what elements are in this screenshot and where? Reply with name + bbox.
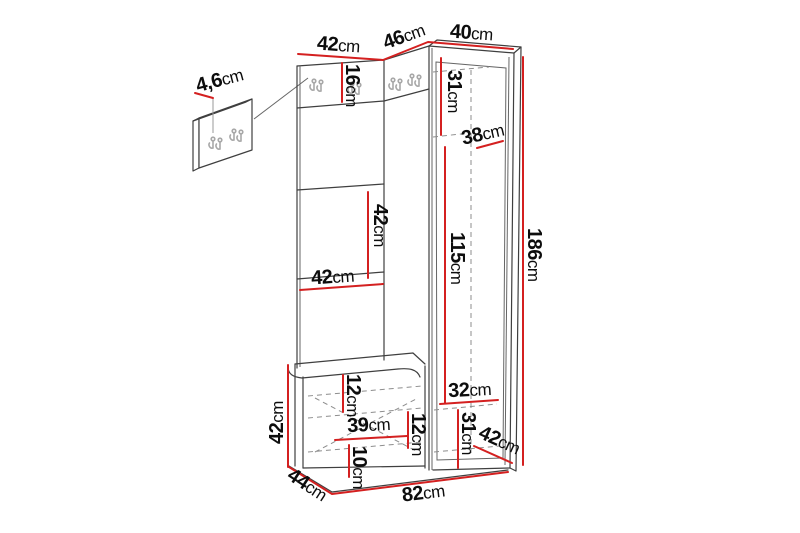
- dim-cabinet-top-depth-label: 38cm: [459, 119, 506, 150]
- dim-bench-plinth-height-label: 10cm: [348, 446, 370, 489]
- dim-hook-strip-height-label: 16cm: [341, 64, 363, 107]
- panel-divider-line: [297, 184, 384, 190]
- dim-cabinet-interior-height-label: 115cm: [446, 232, 468, 285]
- dim-bench-interior-height-label: 12cm: [407, 413, 429, 456]
- coat-hook-icon: [389, 78, 402, 90]
- hook-strip-bottom-edge: [297, 89, 429, 108]
- dimension-labels: 42cm 46cm 40cm 4,6cm 16cm 31cm 38cm 42cm…: [193, 19, 545, 507]
- dim-cabinet-bottom-width-label: 32cm: [448, 378, 492, 402]
- dim-seat-thickness-label: 12cm: [342, 374, 364, 417]
- dim-bench-interior-width-label: 39cm: [347, 413, 391, 437]
- dim-panel-section-height-label: 42cm: [369, 204, 391, 247]
- dim-hook-panel-thickness-label: 4,6cm: [193, 63, 245, 97]
- dim-bench-depth-label: 44cm: [283, 464, 331, 506]
- dim-panel-section-width-label: 42cm: [310, 265, 355, 290]
- bench-shelf-dashed-line: [308, 386, 422, 396]
- dim-cabinet-bottom-height-label: 31cm: [457, 412, 479, 455]
- cabinet-right-edge: [510, 53, 514, 468]
- dim-top-left-width-label: 42cm: [316, 33, 361, 58]
- diagram-canvas: 42cm 46cm 40cm 4,6cm 16cm 31cm 38cm 42cm…: [0, 0, 800, 533]
- coat-hook-icon: [310, 79, 323, 91]
- furniture-dimension-diagram: 42cm 46cm 40cm 4,6cm 16cm 31cm 38cm 42cm…: [0, 0, 800, 533]
- dim-total-width-label: 82cm: [401, 479, 447, 506]
- dim-top-right-width-label: 40cm: [449, 21, 494, 46]
- cabinet-bottom-edge: [433, 468, 510, 470]
- hook-panel-side-face: [193, 118, 199, 171]
- dim-bench-interior-width-line: [335, 436, 407, 440]
- dim-cabinet-upper-height-label: 31cm: [443, 70, 465, 113]
- coat-hook-icon: [408, 74, 421, 86]
- dim-bench-height-label: 42cm: [266, 401, 288, 444]
- dim-total-height-label: 186cm: [523, 228, 545, 282]
- bench-seat-back-edge: [295, 353, 425, 364]
- cabinet-shelf-dashed-line: [434, 404, 497, 410]
